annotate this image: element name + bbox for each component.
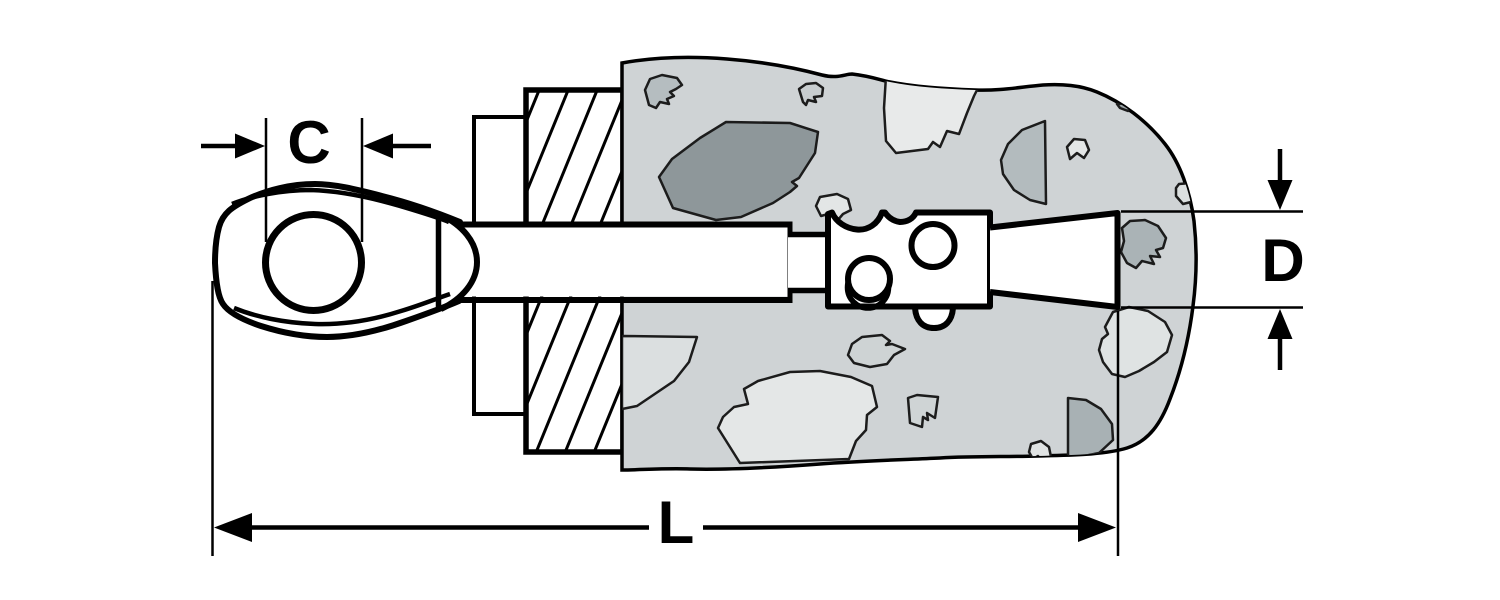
neck-body (788, 237, 829, 288)
expander-wedge (990, 213, 1118, 308)
diagram-canvas: C D L (0, 0, 1500, 600)
arrow-right-icon (235, 134, 265, 159)
dimension-d-label: D (1261, 227, 1304, 294)
anchor-dimension-diagram: C D L (0, 0, 1500, 600)
anchor-neck (788, 235, 829, 291)
arrow-left-icon (363, 134, 393, 159)
eye-head (215, 183, 477, 338)
arrow-up-icon (1268, 309, 1293, 339)
arrow-left-icon (214, 513, 252, 542)
arrow-down-icon (1268, 180, 1293, 210)
dimension-l-label: L (658, 489, 695, 556)
sleeve-hole-upper (912, 224, 955, 267)
shaft-body (445, 228, 791, 297)
arrow-right-icon (1078, 513, 1116, 542)
sleeve-bottom-lobe (915, 308, 953, 328)
threaded-shaft (445, 222, 791, 304)
dimension-c-label: C (287, 109, 330, 176)
eye-hole (266, 215, 362, 311)
sleeve-hole-lower (848, 258, 890, 300)
